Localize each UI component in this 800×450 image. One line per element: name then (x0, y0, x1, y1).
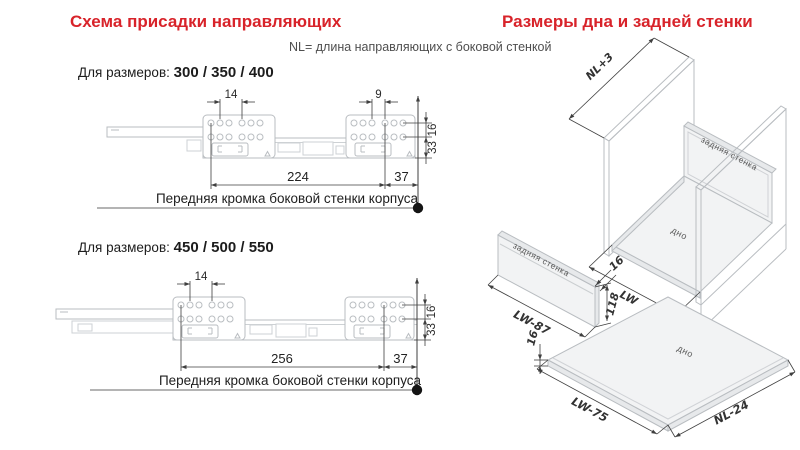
size-range-1-prefix: Для размеров: (78, 65, 170, 80)
slide-drawing-450-550: 14 16 33 256 37 (50, 268, 440, 410)
dim-37-label: 37 (393, 351, 407, 366)
front-edge-label: Передняя кромка боковой стенки корпуса (156, 191, 419, 206)
rear-mounting-bracket (346, 115, 415, 158)
dim-118-label: 118 (603, 291, 622, 317)
dim-33-label: 33 (427, 141, 439, 154)
dim-nl3-label: NL+3 (583, 50, 616, 83)
front-mounting-bracket (173, 297, 245, 340)
cabinet-assembly: задняя стенка дно (604, 57, 786, 330)
dim-lw75-label: LW-75 (569, 394, 610, 425)
dim-16-label: 16 (427, 124, 439, 137)
size-range-2: Для размеров: 450 / 500 / 550 (78, 239, 274, 256)
dim-lw-label: LW (618, 288, 641, 308)
dim-14-label: 14 (225, 89, 238, 101)
size-range-2-values: 450 / 500 / 550 (174, 239, 274, 256)
rear-mounting-bracket (345, 297, 414, 340)
back-wall-panel: задняя стенка LW-87 118 (487, 231, 627, 339)
dim-256-label: 256 (271, 351, 293, 366)
slide-drawing-300-400: 14 9 16 33 (85, 86, 443, 228)
front-mounting-bracket (203, 115, 275, 158)
dim-9-label: 9 (375, 89, 381, 101)
dim-16-label: 16 (426, 306, 438, 319)
dim-224-label: 224 (287, 169, 309, 184)
dim-33-label: 33 (426, 323, 438, 336)
size-range-1: Для размеров: 300 / 350 / 400 (78, 64, 274, 81)
technical-drawing-page: Схема присадки направляющих Размеры дна … (0, 0, 800, 450)
bottom-panel: дно LW-75 NL-24 (524, 297, 796, 439)
left-section-title: Схема присадки направляющих (70, 12, 341, 32)
dim-37-label: 37 (394, 169, 408, 184)
dim-14-label: 14 (195, 271, 208, 283)
size-range-2-prefix: Для размеров: (78, 240, 170, 255)
size-range-1-values: 300 / 350 / 400 (174, 64, 274, 81)
panel-dimensions-diagram: задняя стенка дно NL+3 (478, 28, 800, 446)
front-edge-label: Передняя кромка боковой стенки корпуса (159, 373, 422, 388)
